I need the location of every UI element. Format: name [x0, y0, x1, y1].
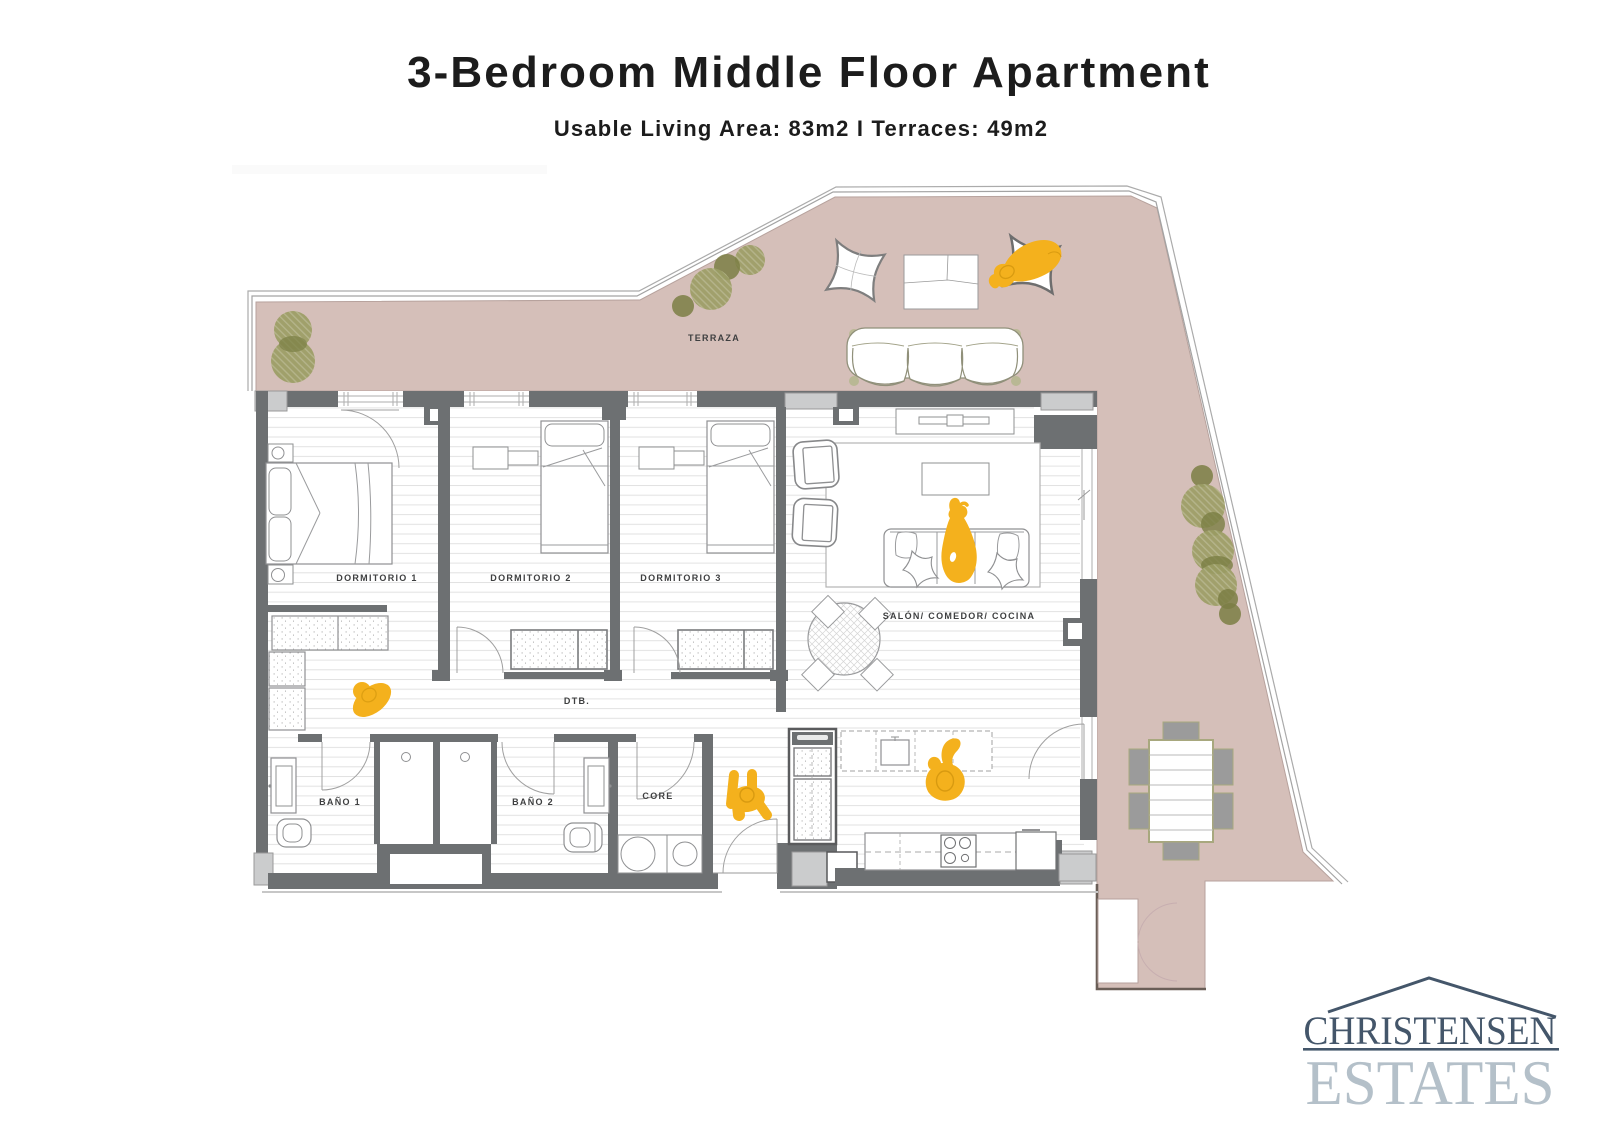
svg-text:SALÓN/ COMEDOR/ COCINA: SALÓN/ COMEDOR/ COCINA — [883, 610, 1036, 621]
svg-text:DORMITORIO 1: DORMITORIO 1 — [336, 573, 417, 583]
svg-text:BAÑO 1: BAÑO 1 — [319, 797, 361, 807]
svg-text:DTB.: DTB. — [564, 696, 590, 706]
svg-text:CHRISTENSEN: CHRISTENSEN — [1304, 1008, 1557, 1053]
svg-text:CORE: CORE — [642, 791, 673, 801]
svg-text:BAÑO 2: BAÑO 2 — [512, 797, 554, 807]
svg-text:Usable Living Area: 83m2 I Ter: Usable Living Area: 83m2 I Terraces: 49m… — [554, 116, 1048, 141]
svg-text:DORMITORIO 3: DORMITORIO 3 — [640, 573, 721, 583]
svg-text:3-Bedroom Middle Floor Apartme: 3-Bedroom Middle Floor Apartment — [407, 48, 1211, 97]
svg-text:TERRAZA: TERRAZA — [688, 333, 740, 343]
svg-text:ESTATES: ESTATES — [1306, 1048, 1555, 1118]
svg-text:DORMITORIO 2: DORMITORIO 2 — [490, 573, 571, 583]
